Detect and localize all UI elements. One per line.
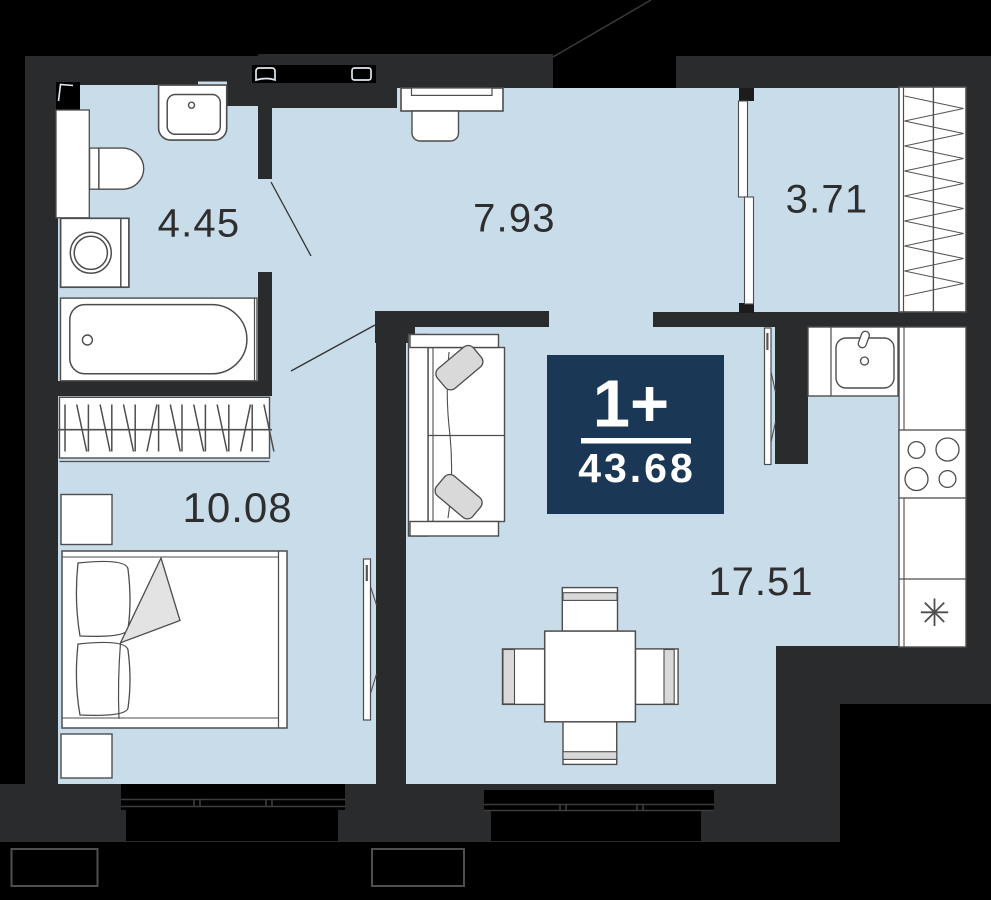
svg-text:1+: 1+ (593, 367, 669, 442)
svg-text:3.71: 3.71 (786, 178, 869, 222)
svg-text:17.51: 17.51 (708, 560, 813, 604)
svg-text:4.45: 4.45 (158, 202, 241, 246)
svg-text:43.68: 43.68 (578, 445, 696, 491)
svg-text:10.08: 10.08 (183, 484, 293, 531)
svg-text:7.93: 7.93 (473, 197, 556, 241)
